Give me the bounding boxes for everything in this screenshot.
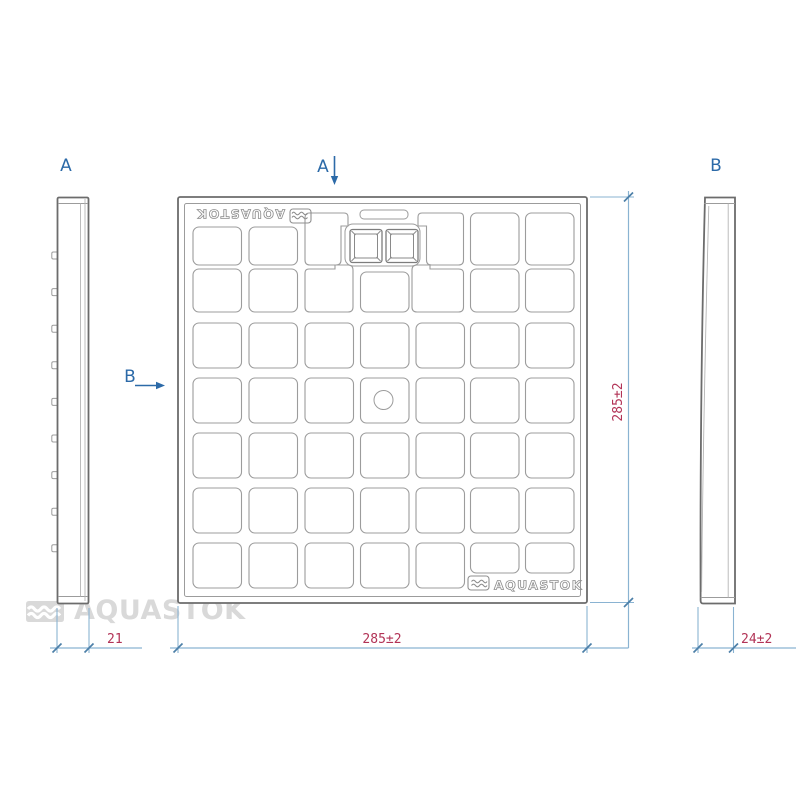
view-a-label: A — [60, 156, 72, 176]
dim-width-label: 285±2 — [362, 632, 401, 647]
technical-drawing: AQUASTOK AQUASTOK 285±2 — [0, 0, 800, 800]
view-b-label: B — [710, 156, 722, 176]
main-view: AQUASTOK AQUASTOK — [178, 197, 587, 603]
dim-side-b-thickness: 24±2 — [692, 607, 796, 653]
cut-b-label: B — [124, 367, 136, 387]
cut-arrow-a: A — [317, 156, 338, 185]
arrow-down-icon — [331, 176, 338, 185]
side-view-a — [52, 198, 89, 604]
cut-arrow-b: B — [124, 367, 165, 389]
dim-plate-width: 285±2 — [170, 606, 629, 653]
side-view-b — [701, 198, 735, 604]
dim-side-a-thickness: 21 — [50, 608, 142, 653]
dim-height-label: 285±2 — [611, 382, 626, 421]
dim-plate-height: 285±2 — [590, 191, 634, 648]
drawing-canvas: AQUASTOK — [0, 0, 800, 800]
plate-logo-text: AQUASTOK — [494, 578, 583, 593]
cut-a-label: A — [317, 157, 329, 177]
arrow-right-icon — [156, 382, 165, 389]
dim-side-b-label: 24±2 — [741, 632, 772, 647]
plate-logo-text: AQUASTOK — [196, 207, 285, 222]
dim-side-a-label: 21 — [107, 632, 123, 647]
